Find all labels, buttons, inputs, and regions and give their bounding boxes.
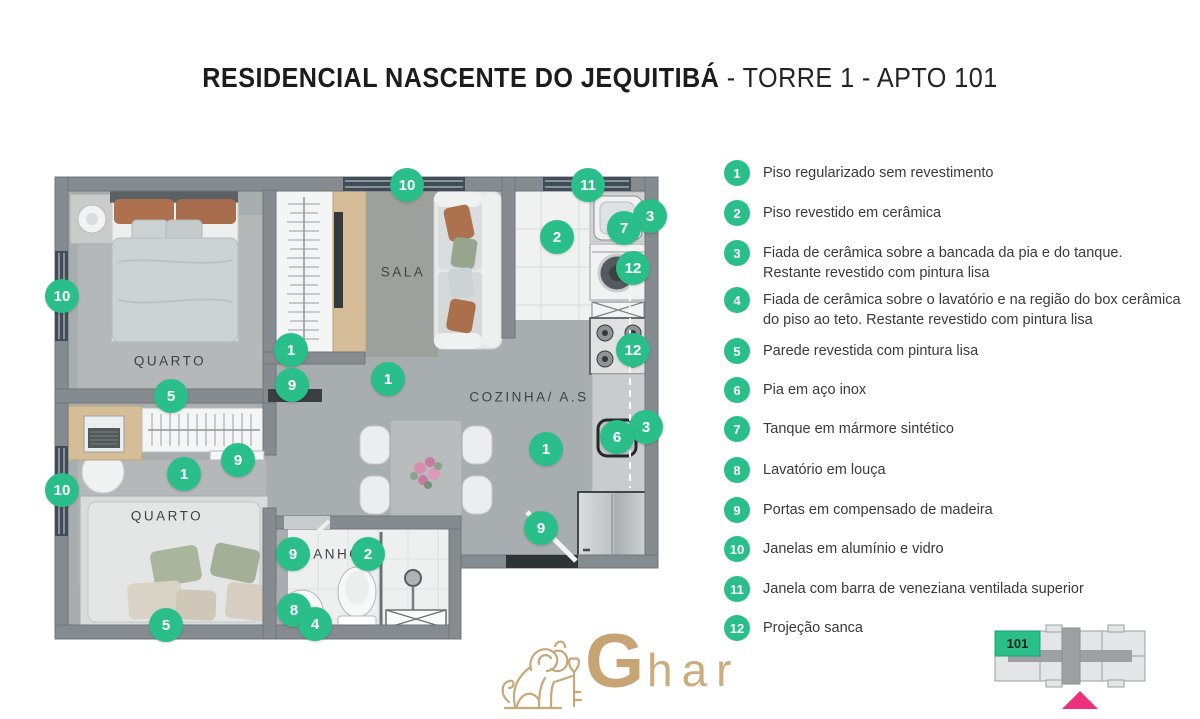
legend-marker-11: 11: [724, 576, 750, 602]
legend-item-7: 7Tanque em mármore sintético: [724, 416, 1181, 442]
legend-text-1: Piso regularizado sem revestimento: [763, 160, 1181, 183]
legend-marker-2: 2: [724, 200, 750, 226]
logo-letter-g: G: [585, 616, 644, 708]
legend-text-12: Projeção sanca: [763, 615, 1181, 638]
plan-marker-1: 1: [371, 362, 405, 396]
legend-marker-5: 5: [724, 338, 750, 364]
plan-marker-3: 3: [629, 410, 663, 444]
legend-item-3: 3Fiada de cerâmica sobre a bancada da pi…: [724, 240, 1181, 283]
plan-marker-2: 2: [351, 537, 385, 571]
legend-item-1: 1Piso regularizado sem revestimento: [724, 160, 1181, 186]
plan-marker-2: 2: [540, 220, 574, 254]
page: RESIDENCIAL NASCENTE DO JEQUITIBÁ - TORR…: [0, 0, 1200, 719]
closet-bedroom1: [276, 191, 333, 352]
legend-text-10: Janelas em alumínio e vidro: [763, 536, 1181, 559]
sofa-pillow-green: [450, 236, 478, 269]
entrance-opening: [506, 555, 578, 568]
plan-marker-4: 4: [298, 607, 332, 641]
legend-text-7: Tanque em mármore sintético: [763, 416, 1181, 439]
legend-marker-6: 6: [724, 377, 750, 403]
legend-text-8: Lavatório em louça: [763, 457, 1181, 480]
keyplan-unit-label: 101: [995, 631, 1040, 656]
room-label-sala: SALA: [381, 265, 426, 280]
plan-marker-9: 9: [221, 443, 255, 477]
legend-text-11: Janela com barra de veneziana ventilada …: [763, 576, 1181, 599]
plan-marker-1: 1: [274, 333, 308, 367]
legend-item-2: 2Piso revestido em cerâmica: [724, 200, 1181, 226]
legend-item-6: 6Pia em aço inox: [724, 377, 1181, 403]
bed-double: [110, 191, 238, 342]
plan-marker-9: 9: [276, 537, 310, 571]
legend-item-8: 8Lavatório em louça: [724, 457, 1181, 483]
legend-marker-10: 10: [724, 536, 750, 562]
legend-marker-9: 9: [724, 497, 750, 523]
logo-letters-har: har: [647, 640, 740, 700]
legend-text-6: Pia em aço inox: [763, 377, 1181, 400]
keyplan-arrow-icon: [1062, 691, 1098, 709]
room-label-quarto-1: QUARTO: [134, 354, 206, 369]
plan-marker-9: 9: [524, 511, 558, 545]
dining-chair: [360, 426, 390, 464]
plan-marker-7: 7: [607, 211, 641, 245]
counter-hatch: [592, 302, 644, 318]
plan-marker-12: 12: [616, 251, 650, 285]
fridge: [578, 492, 646, 556]
plan-marker-12: 12: [616, 333, 650, 367]
toilet: [338, 567, 376, 632]
legend-marker-7: 7: [724, 416, 750, 442]
desk: [68, 406, 142, 460]
legend-item-12: 12Projeção sanca: [724, 615, 1181, 641]
legend-item-10: 10Janelas em alumínio e vidro: [724, 536, 1181, 562]
dining-chair: [360, 476, 390, 514]
plan-marker-5: 5: [149, 608, 183, 642]
plan-marker-1: 1: [167, 457, 201, 491]
legend-item-9: 9Portas em compensado de madeira: [724, 497, 1181, 523]
plan-marker-9: 9: [275, 368, 309, 402]
ghar-logo: G har: [497, 616, 752, 716]
legend-text-5: Parede revestida com pintura lisa: [763, 338, 1181, 361]
legend-item-5: 5Parede revestida com pintura lisa: [724, 338, 1181, 364]
plan-marker-6: 6: [600, 420, 634, 454]
legend-marker-1: 1: [724, 160, 750, 186]
legend-item-4: 4Fiada de cerâmica sobre o lavatório e n…: [724, 287, 1181, 330]
legend-text-9: Portas em compensado de madeira: [763, 497, 1181, 520]
legend-text-3: Fiada de cerâmica sobre a bancada da pia…: [763, 240, 1181, 283]
plan-marker-5: 5: [154, 379, 188, 413]
plan-marker-11: 11: [571, 168, 605, 202]
legend-marker-3: 3: [724, 240, 750, 266]
plan-marker-10: 10: [45, 473, 79, 507]
tv: [334, 212, 343, 308]
legend-marker-4: 4: [724, 287, 750, 313]
plan-marker-1: 1: [529, 432, 563, 466]
tv-cabinet: [333, 190, 366, 352]
legend-marker-8: 8: [724, 457, 750, 483]
legend-item-11: 11Janela com barra de veneziana ventilad…: [724, 576, 1181, 602]
legend-text-4: Fiada de cerâmica sobre o lavatório e na…: [763, 287, 1181, 330]
legend-text-2: Piso revestido em cerâmica: [763, 200, 1181, 223]
plan-marker-10: 10: [390, 168, 424, 202]
sofa: [434, 191, 502, 349]
room-label-quarto-2: QUARTO: [131, 509, 203, 524]
dining-chair: [462, 426, 492, 464]
nightstand: [70, 194, 114, 244]
plan-marker-10: 10: [45, 279, 79, 313]
room-label-cozinha: COZINHA/ A.S: [469, 390, 588, 405]
dining-table: [390, 420, 462, 524]
dining-chair: [462, 476, 492, 514]
